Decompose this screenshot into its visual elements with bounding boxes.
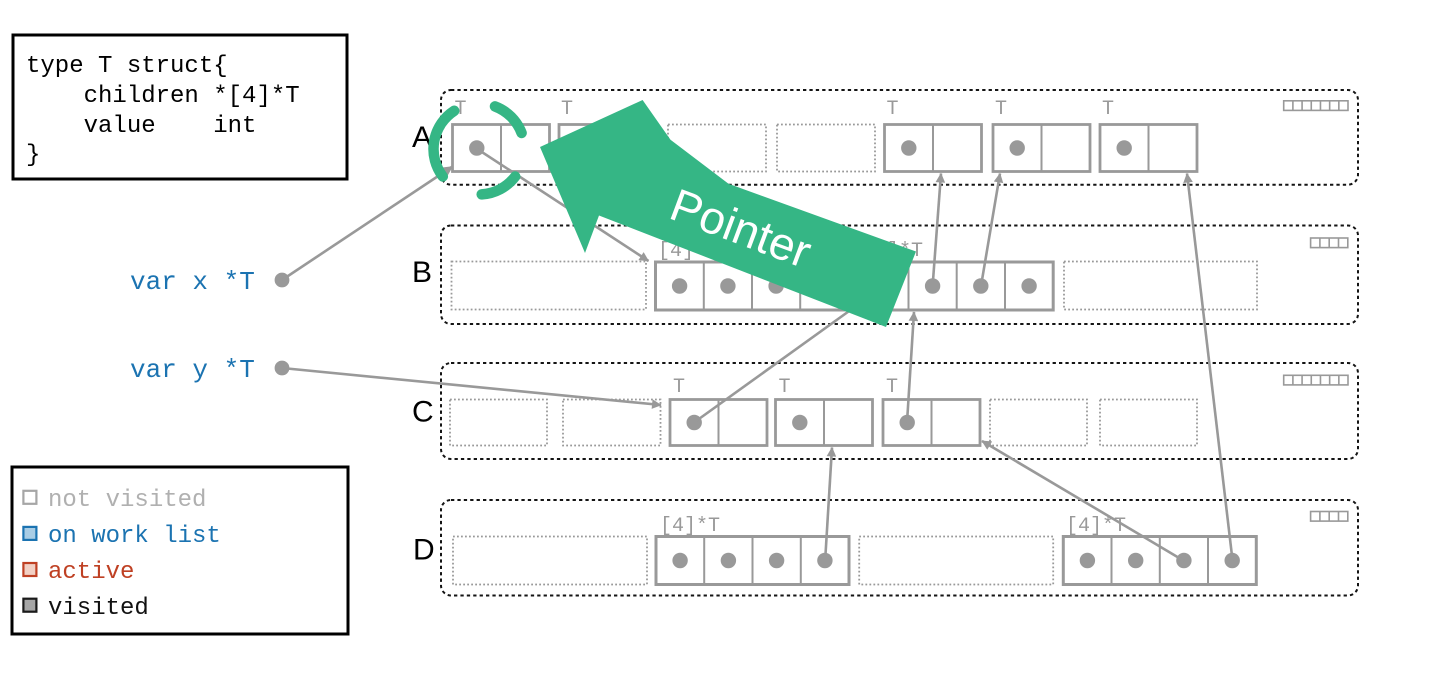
svg-text:T: T: [1102, 98, 1114, 121]
svg-text:not visited: not visited: [48, 487, 206, 514]
svg-text:[4]*T: [4]*T: [1066, 515, 1126, 538]
svg-text:[4]*T: [4]*T: [660, 515, 720, 538]
svg-text:on work list: on work list: [48, 523, 221, 550]
svg-text:D: D: [413, 534, 435, 567]
svg-text:value int: value int: [26, 113, 256, 140]
svg-text:T: T: [995, 98, 1007, 121]
svg-text:T: T: [673, 376, 685, 399]
svg-text:T: T: [887, 98, 899, 121]
svg-text:T: T: [886, 376, 898, 399]
svg-text:var x *T: var x *T: [130, 267, 255, 297]
svg-text:active: active: [48, 559, 134, 586]
svg-text:C: C: [412, 396, 434, 429]
svg-text:}: }: [26, 142, 40, 169]
svg-text:T: T: [779, 376, 791, 399]
svg-text:children *[4]*T: children *[4]*T: [26, 83, 300, 110]
svg-text:type T struct{: type T struct{: [26, 53, 228, 80]
svg-text:visited: visited: [48, 595, 149, 622]
svg-text:T: T: [561, 98, 573, 121]
svg-text:var y *T: var y *T: [130, 355, 255, 385]
svg-text:B: B: [412, 256, 432, 289]
